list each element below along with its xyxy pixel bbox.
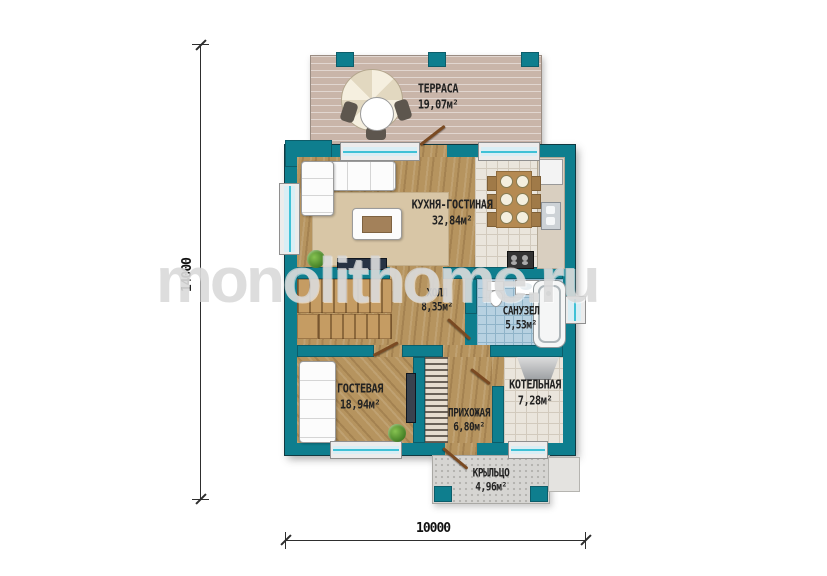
kitchen-sink — [541, 202, 561, 230]
room-label-porch: КРЫЛЬЦО 4,96м² — [473, 466, 510, 495]
wall-hallway-boiler — [492, 386, 504, 443]
window-glass — [343, 147, 417, 156]
wardrobe — [425, 357, 448, 443]
room-name: КРЫЛЬЦО — [473, 466, 510, 480]
tv-panel-guest — [406, 373, 416, 423]
room-label-guest: ГОСТЕВАЯ 18,94м² — [337, 380, 383, 411]
terrace-post-middle — [428, 52, 446, 67]
wall-hall-bottom-mid — [402, 345, 443, 357]
window-glass — [481, 147, 537, 156]
porch-step — [548, 457, 580, 492]
room-name: КУХНЯ-ГОСТИНАЯ — [412, 196, 493, 212]
window-glass — [511, 446, 545, 454]
plate — [500, 211, 513, 224]
window-top-left — [340, 142, 420, 161]
stairs-lower-flight — [318, 314, 392, 339]
room-area: 4,96м² — [473, 480, 510, 494]
floor-opening-hall-hallway — [443, 345, 490, 357]
porch-post-left — [434, 486, 452, 502]
sink-basin-top — [546, 206, 555, 214]
porch-post-right — [530, 486, 548, 502]
room-name: ТЕРРАСА — [418, 80, 458, 96]
guest-sofa — [299, 361, 336, 443]
window-glass — [284, 186, 295, 252]
window-boiler — [508, 441, 548, 459]
coffee-table-top — [362, 216, 392, 233]
window-glass — [333, 446, 399, 454]
room-name: ПРИХОЖАЯ — [448, 406, 490, 420]
room-label-terrace: ТЕРРАСА 19,07м² — [418, 80, 458, 111]
room-area: 19,07м² — [418, 96, 458, 112]
terrace-post-left — [336, 52, 354, 67]
room-area: 32,84м² — [412, 212, 493, 228]
room-area: 5,53м² — [503, 318, 540, 332]
sink-basin-bottom — [546, 217, 555, 225]
window-guest — [330, 441, 402, 459]
sofa-corner-vertical — [301, 161, 334, 216]
plant-guest — [388, 424, 406, 442]
plate — [500, 193, 513, 206]
stairs-landing — [297, 314, 318, 339]
watermark: monolithome.ru — [156, 248, 598, 312]
plate — [500, 175, 513, 188]
dimension-line-horizontal — [285, 540, 585, 541]
room-area: 7,28м² — [509, 392, 561, 408]
floor-plan-canvas: 14000 10000 — [0, 0, 827, 576]
room-area: 6,80м² — [448, 420, 490, 434]
plate — [516, 211, 529, 224]
dimension-tick-top — [195, 39, 206, 50]
window-top-right — [478, 142, 540, 161]
room-label-kitchen-living: КУХНЯ-ГОСТИНАЯ 32,84м² — [412, 196, 493, 227]
fridge — [539, 159, 563, 185]
plate — [516, 175, 529, 188]
dimension-label-horizontal: 10000 — [416, 521, 450, 536]
floor-opening-terrace-door — [418, 145, 447, 157]
room-area: 18,94м² — [337, 396, 383, 412]
coffee-table — [352, 208, 402, 240]
wall-hall-guest — [297, 345, 374, 357]
room-name: КОТЕЛЬНАЯ — [509, 376, 561, 392]
room-label-boiler: КОТЕЛЬНАЯ 7,28м² — [509, 376, 561, 407]
room-label-hallway: ПРИХОЖАЯ 6,80м² — [448, 406, 490, 435]
plate — [516, 193, 529, 206]
room-name: ГОСТЕВАЯ — [337, 380, 383, 396]
floor-opening-boiler-door — [492, 357, 504, 386]
patio-table — [360, 97, 394, 131]
terrace-post-right — [521, 52, 539, 67]
